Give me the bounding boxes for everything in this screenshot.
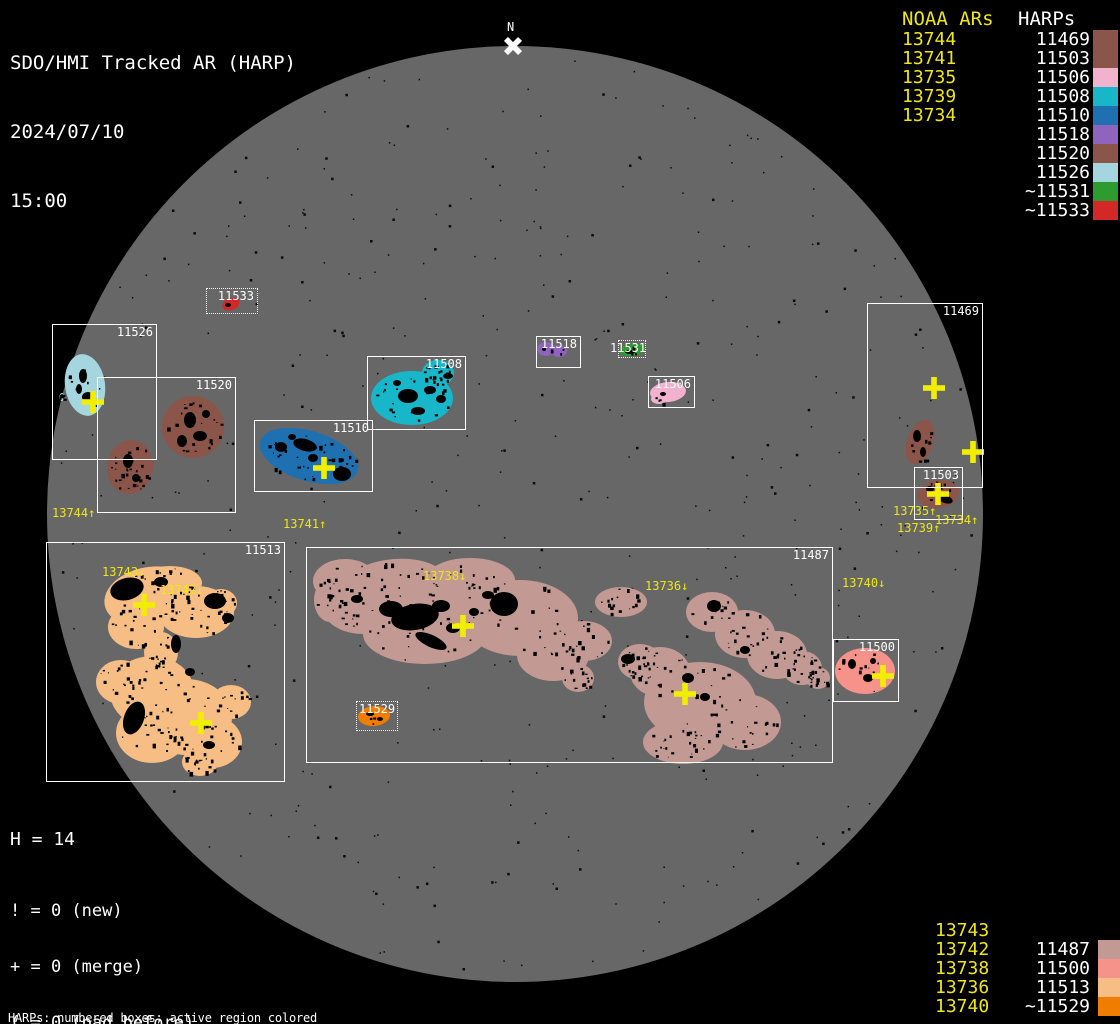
harp-box-11508: 11508 [367, 356, 466, 430]
legend-color-swatch [1098, 959, 1120, 978]
north-label: N [507, 20, 514, 34]
legend-harp-number: 11518 [1018, 125, 1090, 144]
harp-box-11469: 11469 [867, 303, 983, 488]
harps-header: HARPs [1018, 9, 1090, 30]
harp-box-11510: 11510 [254, 420, 373, 492]
legend-row: 1373511506 [902, 68, 1118, 87]
noaa-ar-label-13740: 13740↓ [842, 577, 885, 590]
legend-noaa-number [902, 125, 1018, 144]
legend-noaa-number: 13743 [935, 921, 1015, 940]
noaa-ar-label-13738: 13738↓ [423, 570, 466, 583]
legend-harp-number: ~11533 [1018, 201, 1090, 220]
harp-box-label-11500: 11500 [859, 641, 895, 654]
legend-harp-number [1015, 921, 1090, 940]
legend-row: 1374211487 [935, 940, 1120, 959]
legend-color-swatch [1098, 940, 1120, 959]
legend-noaa-number [902, 182, 1018, 201]
legend-color-swatch [1098, 978, 1120, 997]
solar-harp-map: 1153311526115201150811510115181153111506… [0, 0, 1120, 1024]
legend-noaa-number [902, 163, 1018, 182]
legend-row: 1373411510 [902, 106, 1118, 125]
harp-box-11520: 11520 [97, 377, 236, 513]
legend-row: 11526 [902, 163, 1118, 182]
legend-row: ~11531 [902, 182, 1118, 201]
legend-noaa-number: 13739 [902, 87, 1018, 106]
harp-box-label-11520: 11520 [196, 379, 232, 392]
legend-color-swatch [1093, 87, 1118, 106]
legend-noaa-number: 13738 [935, 959, 1015, 978]
legend-color-swatch [1093, 182, 1118, 201]
harp-box-label-11510: 11510 [333, 422, 369, 435]
harp-box-label-11529: 11529 [359, 703, 395, 716]
legend-harp-number: ~11531 [1018, 182, 1090, 201]
legend-row: 1374111503 [902, 49, 1118, 68]
legend-color-swatch [1093, 201, 1118, 220]
legend-row: 13740~11529 [935, 997, 1120, 1016]
legend-harp-number: 11510 [1018, 106, 1090, 125]
legend-color-swatch [1093, 30, 1118, 49]
page-title: SDO/HMI Tracked AR (HARP) [10, 52, 296, 75]
harp-box-label-11508: 11508 [426, 358, 462, 371]
legend-row: 11518 [902, 125, 1118, 144]
harp-box-11518: 11518 [536, 336, 581, 368]
legend-harp-number: 11513 [1015, 978, 1090, 997]
harp-box-label-11506: 11506 [655, 378, 691, 391]
legend-bottom-right: 1374313742114871373811500137361151313740… [935, 921, 1120, 1016]
harp-box-label-11518: 11518 [541, 338, 577, 351]
legend-noaa-number: 13734 [902, 106, 1018, 125]
legend-noaa-number: 13744 [902, 30, 1018, 49]
legend-harp-number: 11520 [1018, 144, 1090, 163]
legend-row: 1373611513 [935, 978, 1120, 997]
legend-harp-number: 11487 [1015, 940, 1090, 959]
legend-color-swatch [1098, 997, 1120, 1016]
legend-color-swatch [1093, 163, 1118, 182]
legend-row: ~11533 [902, 201, 1118, 220]
harp-box-label-11526: 11526 [117, 326, 153, 339]
harp-box-label-11531: 11531 [610, 342, 646, 355]
noaa-ar-label-13743: 13743↓ [102, 566, 145, 579]
legend-harp-number: 11503 [1018, 49, 1090, 68]
stat-line-new: ! = 0 (new) [10, 902, 204, 921]
legend-headers: NOAA ARs HARPs [902, 9, 1118, 30]
legend-harp-number: ~11529 [1015, 997, 1090, 1016]
footnote-harps: HARPs: numbered boxes; active region col… [8, 1013, 415, 1024]
legend-noaa-number: 13742 [935, 940, 1015, 959]
legend-row: 1374411469 [902, 30, 1118, 49]
noaa-ars-header: NOAA ARs [902, 9, 1018, 30]
legend-noaa-number: 13740 [935, 997, 1015, 1016]
header: SDO/HMI Tracked AR (HARP) 2024/07/10 15:… [10, 6, 296, 259]
legend-color-swatch [1093, 125, 1118, 144]
footnotes: HARPs: numbered boxes; active region col… [8, 990, 415, 1024]
noaa-ar-label-13742: 13742↓ [160, 584, 203, 597]
noaa-ar-label-13739: 13739↑ [897, 522, 940, 535]
harp-count: H = 14 [10, 829, 75, 850]
noaa-ar-label-13736: 13736↓ [645, 580, 688, 593]
header-date: 2024/07/10 [10, 121, 296, 144]
legend-row: 13743 [935, 921, 1120, 940]
harp-box-label-11503: 11503 [923, 469, 959, 482]
legend-row: 11520 [902, 144, 1118, 163]
harp-box-label-11469: 11469 [943, 305, 979, 318]
legend-noaa-number [902, 144, 1018, 163]
noaa-ar-label-13735: 13735↑ [893, 505, 936, 518]
header-time: 15:00 [10, 190, 296, 213]
legend-color-swatch [1093, 49, 1118, 68]
legend-noaa-number: 13741 [902, 49, 1018, 68]
legend-color-swatch [1093, 144, 1118, 163]
legend-noaa-number: 13735 [902, 68, 1018, 87]
harp-box-11500: 11500 [833, 639, 899, 702]
legend-noaa-number: 13736 [935, 978, 1015, 997]
legend-top-right: NOAA ARs HARPs 1374411469137411150313735… [902, 9, 1118, 220]
noaa-ar-label-13741: 13741↑ [283, 518, 326, 531]
legend-color-swatch [1093, 106, 1118, 125]
stat-line-merge: + = 0 (merge) [10, 958, 204, 977]
harp-box-label-11513: 11513 [245, 544, 281, 557]
harp-box-11533: 11533 [206, 288, 258, 314]
harp-box-label-11533: 11533 [218, 290, 254, 303]
harp-box-11529: 11529 [356, 701, 398, 731]
legend-noaa-number [902, 201, 1018, 220]
legend-harp-number: 11526 [1018, 163, 1090, 182]
legend-harp-number: 11469 [1018, 30, 1090, 49]
harp-box-11531: 11531 [618, 340, 646, 358]
noaa-ar-label-13744: 13744↑ [52, 507, 95, 520]
harp-box-label-11487: 11487 [793, 549, 829, 562]
harp-box-11506: 11506 [648, 376, 695, 408]
legend-row: 1373811500 [935, 959, 1120, 978]
legend-row: 1373911508 [902, 87, 1118, 106]
legend-harp-number: 11506 [1018, 68, 1090, 87]
noaa-ar-label-13734: 13734↑ [935, 514, 978, 527]
legend-harp-number: 11500 [1015, 959, 1090, 978]
legend-harp-number: 11508 [1018, 87, 1090, 106]
harp-box-11513: 11513 [46, 542, 285, 782]
legend-color-swatch [1093, 68, 1118, 87]
